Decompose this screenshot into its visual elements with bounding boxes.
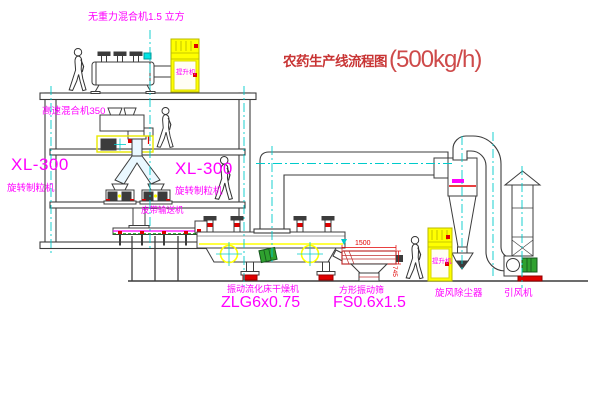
label-draft-fan: 引风机 bbox=[504, 289, 533, 299]
label-high-speed-mixer: 高速混合机350 bbox=[42, 107, 105, 117]
label-gravity-mixer: 无重力混合机1.5 立方 bbox=[88, 13, 185, 23]
high-speed-mixer bbox=[97, 108, 153, 152]
bucket-elevator-1 bbox=[171, 39, 199, 92]
label-granulator2-name: 旋转制粒机 bbox=[175, 187, 223, 197]
label-screen-model: FS0.6x1.5 bbox=[333, 295, 406, 311]
gravity-free-mixer bbox=[91, 52, 179, 94]
title-text: 农药生产线流程图 bbox=[283, 50, 387, 70]
label-belt-conveyor: 皮带输送机 bbox=[141, 206, 184, 215]
worker-figure-floor2 bbox=[157, 107, 173, 147]
exhaust-stack bbox=[505, 171, 540, 256]
label-dryer-model: ZLG6x0.75 bbox=[221, 295, 300, 311]
dimension-screen-length: 1500 bbox=[355, 240, 371, 247]
induced-draft-fan bbox=[504, 256, 542, 281]
label-dryer-name: 振动流化床干燥机 bbox=[227, 285, 299, 294]
worker-figure-roof bbox=[69, 49, 86, 91]
worker-figure-ground bbox=[406, 237, 423, 279]
dryer-exhaust-duct bbox=[254, 152, 448, 233]
dryer-motor bbox=[259, 247, 277, 262]
label-hoist-2: 提升机 bbox=[432, 259, 452, 266]
label-granulator2-model: XL-300 bbox=[175, 160, 233, 177]
cad-process-flow-drawing: 农药生产线流程图 (500kg/h) 无重力混合机1.5 立方 高速混合机350… bbox=[0, 0, 600, 403]
title-capacity: (500kg/h) bbox=[389, 46, 481, 74]
belt-conveyor bbox=[113, 228, 198, 281]
drawing-title: 农药生产线流程图 (500kg/h) bbox=[283, 46, 481, 74]
label-granulator1-name: 旋转制粒机 bbox=[7, 184, 55, 194]
label-hoist-1: 提升机 bbox=[176, 70, 196, 77]
dimension-screen-height: 745 bbox=[391, 266, 398, 277]
bucket-elevator-2 bbox=[428, 228, 452, 281]
rotary-granulator-1 bbox=[104, 184, 136, 204]
label-cyclone: 旋风除尘器 bbox=[435, 289, 483, 299]
rotary-granulator-2 bbox=[140, 184, 172, 204]
label-granulator1-model: XL-300 bbox=[11, 156, 69, 173]
